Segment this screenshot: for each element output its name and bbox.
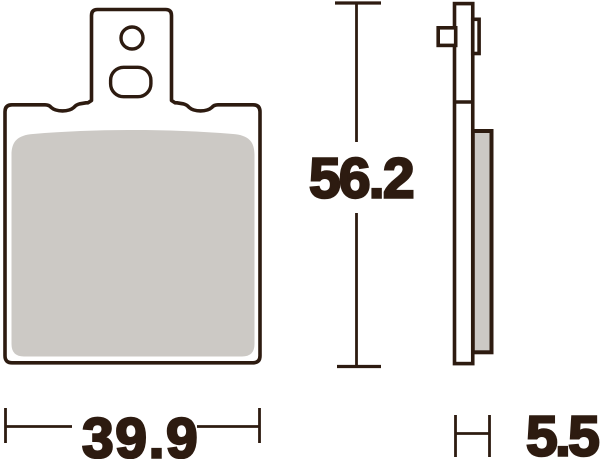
svg-text:5.5: 5.5 [526, 405, 599, 459]
svg-text:56.2: 56.2 [309, 147, 413, 211]
svg-text:39.9: 39.9 [82, 407, 199, 459]
